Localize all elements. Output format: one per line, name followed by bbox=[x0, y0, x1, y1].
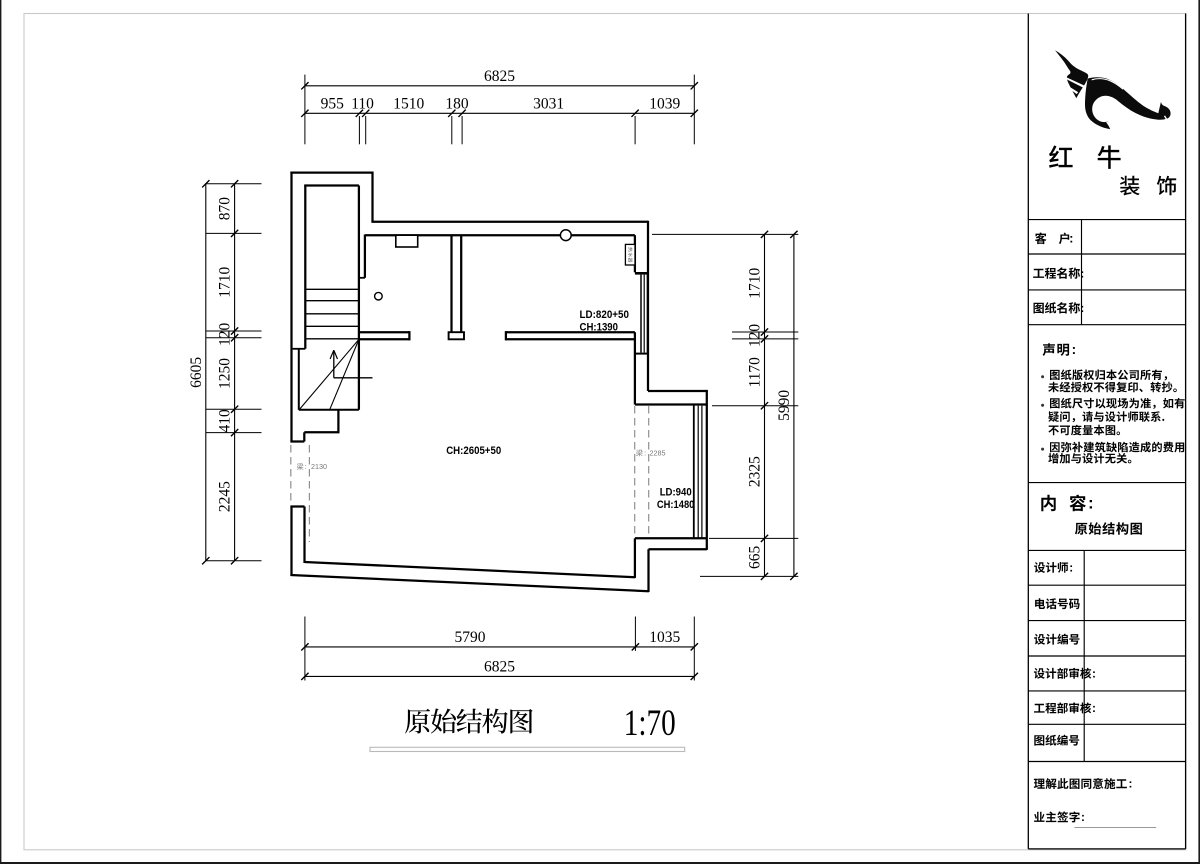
svg-text:1250: 1250 bbox=[217, 358, 234, 389]
svg-text:110: 110 bbox=[351, 95, 374, 112]
svg-text:6605: 6605 bbox=[188, 357, 205, 388]
svg-text::: : bbox=[1092, 666, 1096, 680]
svg-text:LD:940: LD:940 bbox=[660, 487, 692, 499]
svg-text:1035: 1035 bbox=[649, 629, 680, 646]
svg-text::: : bbox=[1088, 494, 1094, 513]
svg-text:1039: 1039 bbox=[649, 95, 680, 112]
svg-text:2325: 2325 bbox=[747, 456, 764, 487]
svg-text::: : bbox=[1080, 266, 1084, 280]
svg-text:665: 665 bbox=[747, 546, 764, 570]
svg-text::: : bbox=[1069, 232, 1073, 246]
svg-text:870: 870 bbox=[217, 197, 234, 221]
svg-text:2130: 2130 bbox=[311, 462, 327, 471]
svg-text:955: 955 bbox=[321, 95, 345, 112]
svg-text:120: 120 bbox=[747, 324, 764, 348]
svg-text::: : bbox=[1080, 301, 1084, 315]
svg-text::: : bbox=[305, 462, 307, 471]
svg-text:180: 180 bbox=[445, 95, 469, 112]
svg-text:6825: 6825 bbox=[484, 68, 515, 85]
svg-text:3031: 3031 bbox=[533, 95, 564, 112]
svg-text:5790: 5790 bbox=[455, 629, 486, 646]
svg-text:LD:820+50: LD:820+50 bbox=[580, 309, 630, 321]
svg-text::: : bbox=[1072, 342, 1077, 357]
svg-text:CH:1480: CH:1480 bbox=[657, 499, 695, 511]
svg-text:1510: 1510 bbox=[393, 95, 424, 112]
svg-text:1170: 1170 bbox=[747, 357, 764, 388]
svg-text:120: 120 bbox=[217, 323, 234, 347]
svg-text::: : bbox=[644, 448, 646, 457]
svg-text:1:70: 1:70 bbox=[624, 702, 676, 743]
svg-text:1710: 1710 bbox=[747, 267, 764, 298]
svg-text:CH:2605+50: CH:2605+50 bbox=[446, 445, 501, 457]
svg-text:2245: 2245 bbox=[217, 481, 234, 512]
svg-text::: : bbox=[1081, 810, 1085, 824]
svg-text:6825: 6825 bbox=[484, 659, 515, 676]
svg-text::: : bbox=[1092, 701, 1096, 715]
svg-text:1710: 1710 bbox=[217, 266, 234, 297]
svg-text:410: 410 bbox=[217, 409, 234, 433]
svg-text:CH:1390: CH:1390 bbox=[580, 322, 619, 334]
svg-text::: : bbox=[1129, 777, 1133, 791]
svg-text:2285: 2285 bbox=[650, 448, 666, 457]
svg-text::: : bbox=[1069, 560, 1073, 574]
